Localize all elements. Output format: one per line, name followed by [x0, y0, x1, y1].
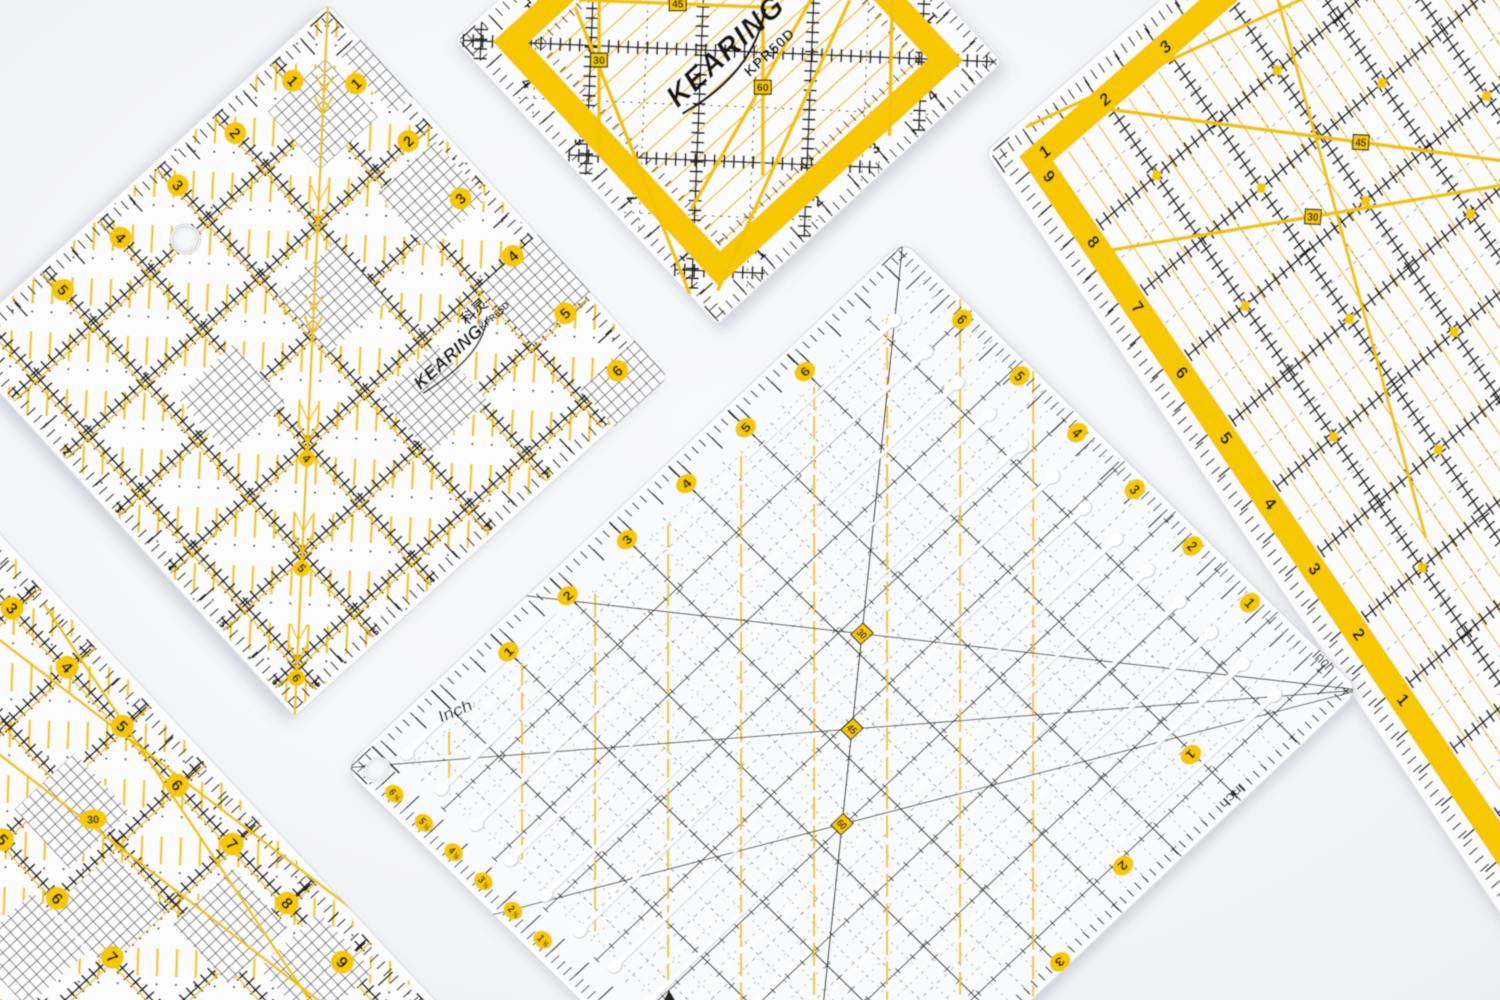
svg-text:30: 30	[593, 56, 605, 67]
svg-text:60: 60	[757, 83, 769, 94]
svg-text:45: 45	[1355, 138, 1367, 150]
svg-text:30: 30	[1307, 212, 1319, 224]
svg-text:30: 30	[87, 814, 99, 826]
svg-text:45: 45	[672, 0, 684, 11]
